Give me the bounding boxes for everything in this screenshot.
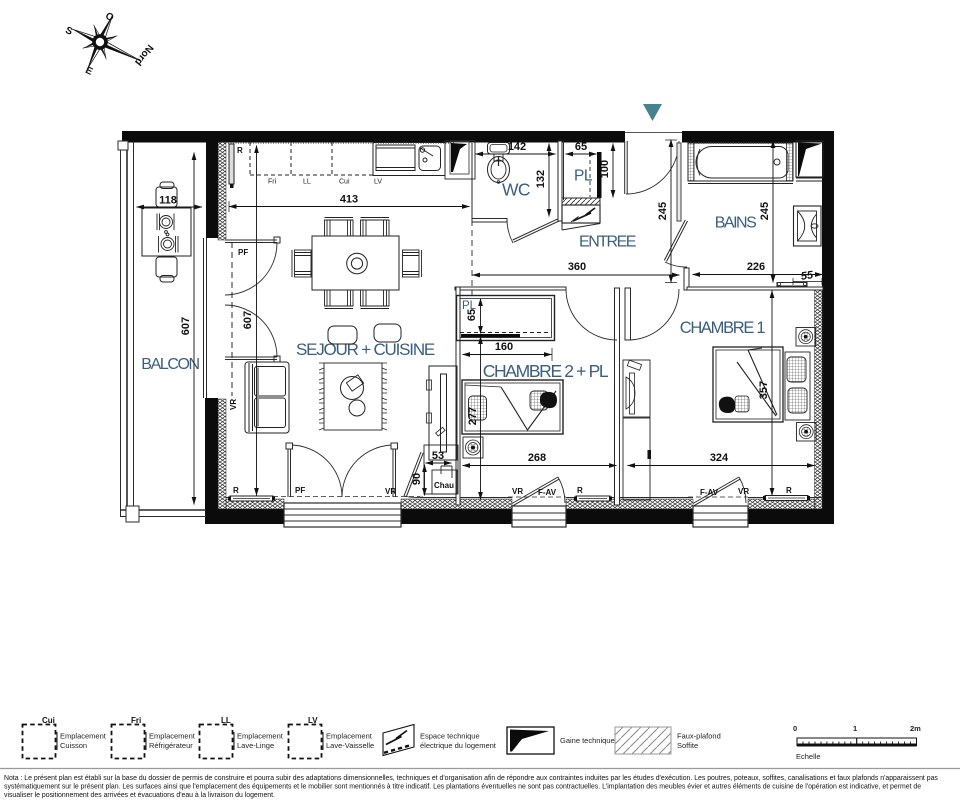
svg-text:Cui: Cui: [339, 179, 350, 186]
svg-text:F-AV: F-AV: [700, 488, 719, 497]
svg-text:SEJOUR + CUISINE: SEJOUR + CUISINE: [296, 340, 435, 359]
svg-text:0: 0: [793, 724, 797, 733]
svg-text:53: 53: [432, 450, 444, 462]
svg-text:Lave-Vaisselle: Lave-Vaisselle: [326, 741, 374, 750]
svg-text:LV: LV: [308, 716, 318, 725]
svg-text:LV: LV: [374, 179, 382, 186]
svg-text:BALCON: BALCON: [141, 356, 199, 373]
svg-text:413: 413: [340, 194, 358, 206]
svg-text:245: 245: [657, 202, 669, 220]
svg-text:Lave-Linge: Lave-Linge: [237, 741, 274, 750]
svg-text:Emplacement: Emplacement: [326, 732, 373, 741]
svg-text:Nota : Le présent plan est éta: Nota : Le présent plan est établi sur la…: [4, 775, 938, 782]
svg-text:Chau: Chau: [434, 481, 454, 490]
svg-text:R: R: [237, 146, 243, 155]
svg-text:Cui: Cui: [42, 716, 55, 725]
svg-text:VR: VR: [229, 399, 238, 410]
svg-text:PL: PL: [574, 168, 593, 185]
svg-text:Faux-plafond: Faux-plafond: [677, 732, 721, 741]
svg-text:Cuisson: Cuisson: [60, 741, 87, 750]
svg-text:PF: PF: [238, 248, 248, 257]
svg-text:CHAMBRE 1: CHAMBRE 1: [680, 319, 766, 337]
svg-text:Fri: Fri: [131, 716, 141, 725]
svg-text:607: 607: [180, 317, 192, 335]
svg-text:CHAMBRE 2 + PL: CHAMBRE 2 + PL: [483, 361, 609, 381]
svg-text:160: 160: [495, 341, 513, 353]
svg-text:245: 245: [759, 202, 771, 220]
svg-text:électrique du logement: électrique du logement: [420, 741, 497, 750]
svg-text:Réfrigérateur: Réfrigérateur: [149, 741, 193, 750]
svg-text:LL: LL: [303, 179, 311, 186]
svg-text:BAINS: BAINS: [715, 215, 756, 232]
svg-text:VR: VR: [738, 487, 749, 496]
svg-text:systématiquement sur le présen: systématiquement sur le présent plan. Le…: [4, 784, 921, 791]
svg-text:Emplacement: Emplacement: [237, 732, 284, 741]
svg-text:132: 132: [535, 170, 547, 188]
svg-text:PF: PF: [295, 486, 305, 495]
svg-text:Emplacement: Emplacement: [60, 732, 107, 741]
svg-text:90: 90: [411, 473, 423, 485]
svg-text:WC: WC: [502, 180, 530, 200]
svg-text:Espace technique: Espace technique: [420, 732, 480, 741]
svg-text:324: 324: [710, 452, 729, 464]
svg-text:VR: VR: [512, 487, 523, 496]
svg-text:R: R: [577, 486, 583, 495]
svg-text:226: 226: [747, 261, 765, 273]
svg-text:VR: VR: [385, 487, 396, 496]
svg-text:Fri: Fri: [268, 179, 277, 186]
svg-text:268: 268: [528, 452, 546, 464]
svg-text:ENTREE: ENTREE: [579, 234, 636, 251]
svg-text:visualiser le positionnement d: visualiser le positionnement des arrivée…: [4, 792, 275, 799]
svg-text:100: 100: [599, 160, 611, 178]
svg-text:Echelle: Echelle: [796, 752, 821, 761]
svg-text:R: R: [786, 486, 792, 495]
svg-text:277: 277: [467, 407, 479, 425]
svg-text:360: 360: [568, 261, 586, 273]
svg-text:2m: 2m: [910, 724, 921, 733]
svg-text:F-AV: F-AV: [538, 488, 557, 497]
svg-text:R: R: [233, 486, 239, 495]
svg-text:LL: LL: [221, 716, 231, 725]
svg-text:Emplacement: Emplacement: [149, 732, 196, 741]
svg-text:1: 1: [853, 724, 857, 733]
svg-text:142: 142: [508, 141, 526, 153]
svg-text:Gaine technique: Gaine technique: [560, 736, 615, 745]
svg-text:607: 607: [242, 311, 254, 329]
svg-text:65: 65: [575, 141, 587, 153]
svg-text:Soffite: Soffite: [677, 741, 698, 750]
svg-text:118: 118: [159, 195, 177, 207]
svg-text:357: 357: [758, 381, 770, 399]
svg-text:65: 65: [466, 309, 478, 321]
